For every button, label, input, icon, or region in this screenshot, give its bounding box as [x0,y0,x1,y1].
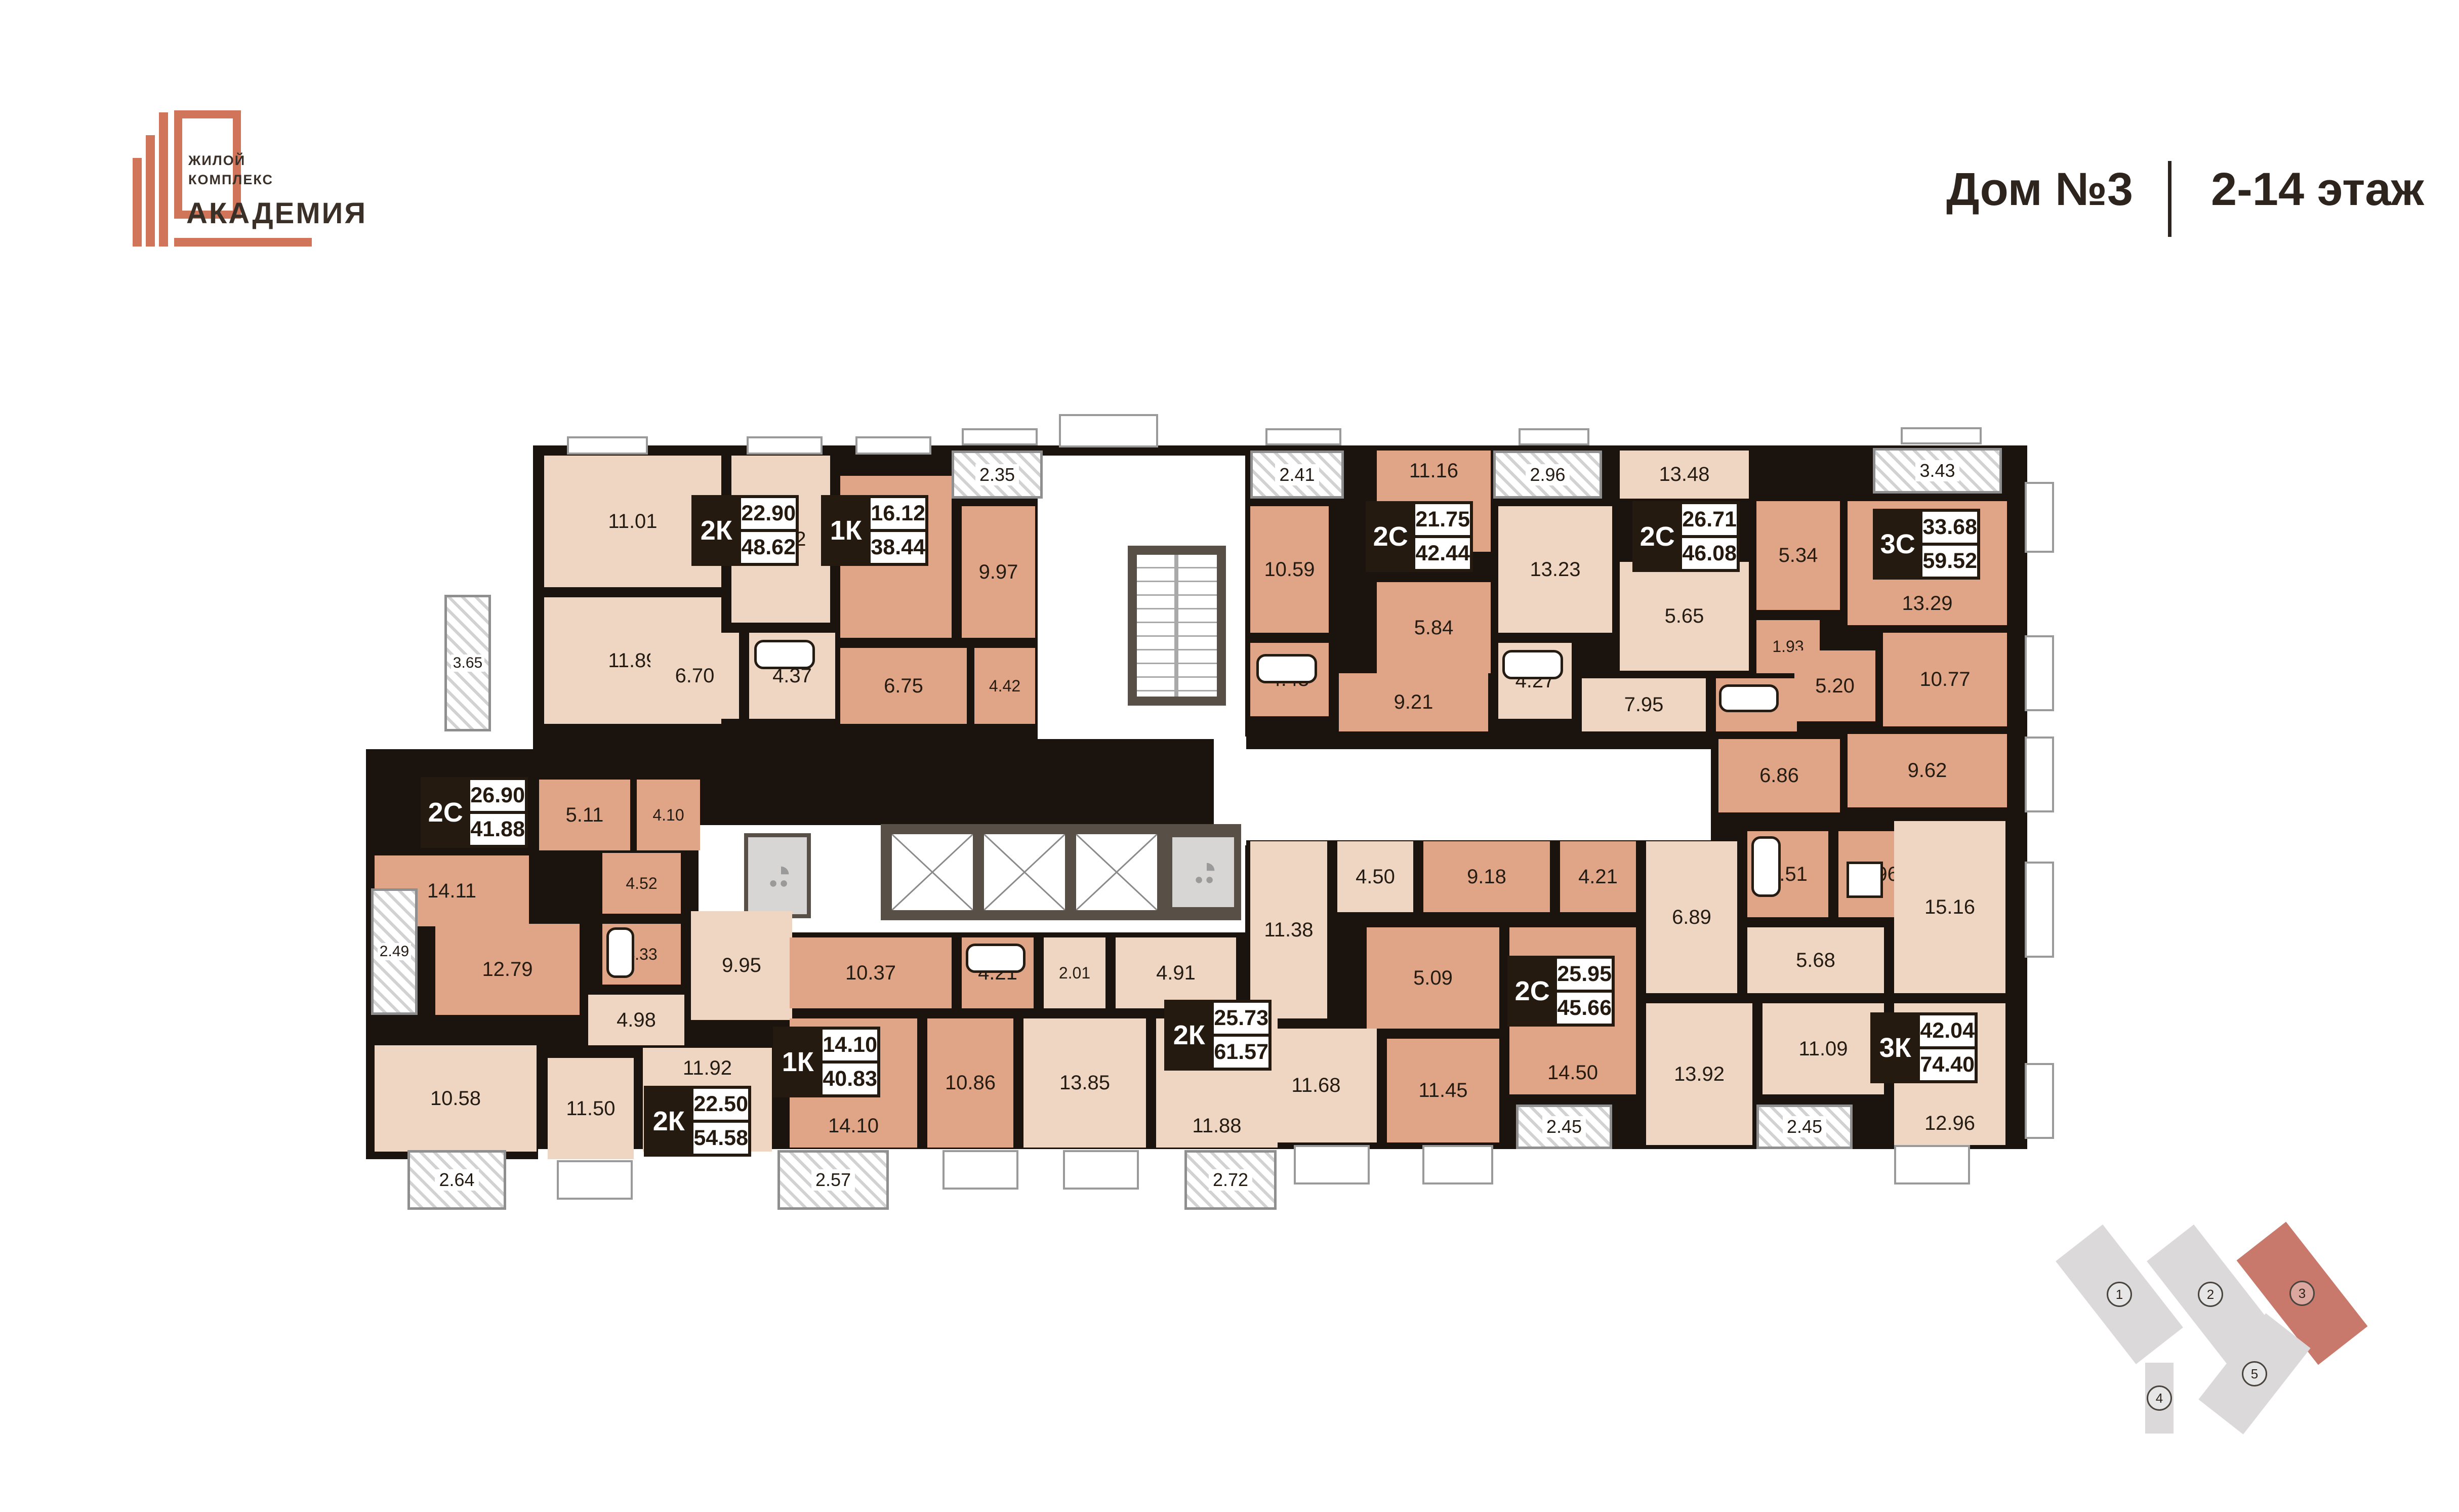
bathtub-icon [966,944,1026,973]
window [1901,427,1982,444]
logo-bar-3 [159,112,168,247]
window [2025,737,2054,812]
room-area-label: 6.75 [884,675,923,698]
room-area-label: 14.10 [828,1115,879,1137]
logo-line1: ЖИЛОЙ [188,153,245,169]
bathtub-icon [606,927,634,978]
logo-line2: КОМПЛЕКС [188,172,273,188]
window [567,436,648,455]
balcony: 2.45 [1756,1105,1853,1149]
balcony-area-label: 2.49 [378,943,411,960]
room-area-label: 15.16 [1924,896,1975,919]
apartment-type: 3С [1876,512,1919,577]
room: 6.89 [1646,841,1737,993]
window [557,1160,633,1200]
header-divider [2168,161,2171,237]
room-area-label: 6.70 [675,665,715,687]
balcony: 3.65 [444,595,491,731]
apartment-plate[interactable]: 3С33.6859.52 [1873,509,1980,580]
apartment-plate[interactable]: 1К16.1238.44 [821,495,928,566]
site-building-number: 3 [2289,1281,2315,1306]
room-area-label: 11.92 [683,1057,732,1080]
apartment-total-area: 61.57 [1214,1037,1268,1068]
room-area-label: 13.29 [1902,592,1952,615]
site-building-number: 4 [2147,1385,2172,1411]
balcony: 2.64 [407,1150,506,1210]
balcony-area-label: 3.43 [1915,460,1959,481]
balcony-area-label: 2.35 [975,464,1019,485]
balcony-area-label: 2.45 [1542,1116,1586,1137]
site-building-number: 1 [2107,1282,2132,1307]
apartment-total-area: 45.66 [1557,993,1612,1024]
apartment-plate[interactable]: 2К22.5054.58 [644,1086,751,1157]
stroller-room [1168,833,1238,911]
window [2025,482,2054,553]
apartment-type: 2К [694,498,738,563]
room-area-label: 10.77 [1919,668,1970,691]
room-area-label: 10.59 [1264,558,1315,581]
shower-icon [1847,862,1883,898]
room: 2.01 [1044,937,1105,1008]
room-area-label: 11.89 [608,649,657,672]
room-area-label: 10.37 [845,962,896,985]
stairs-divider [1174,555,1178,697]
room: 12.79 [435,924,580,1015]
balcony-area-label: 2.72 [1209,1169,1252,1191]
room-area-label: 12.79 [482,958,532,981]
room: 5.68 [1747,927,1884,993]
room: 10.58 [375,1045,537,1152]
room: 13.23 [1498,506,1612,633]
site-building-number: 5 [2242,1361,2267,1386]
room-area-label: 9.18 [1467,866,1506,888]
room-area-label: 11.09 [1798,1038,1848,1060]
room: 4.98 [588,995,684,1045]
stroller-icon [1189,858,1217,886]
apartment-total-area: 59.52 [1922,546,1977,577]
apartment-room-area: 25.95 [1557,959,1612,990]
room-area-label: 5.11 [566,804,604,827]
apartment-type: 1К [824,498,868,563]
room-area-label: 4.50 [1356,866,1395,888]
window [1294,1145,1370,1184]
room: 4.91 [1116,937,1236,1008]
stroller-room [744,833,811,918]
room-area-label: 4.52 [626,874,657,893]
window [2025,635,2054,711]
room-area-label: 6.89 [1672,906,1711,929]
elevator-shaft [892,834,973,910]
window [2025,862,2054,958]
logo-bar-1 [133,158,142,247]
room: 5.20 [1794,650,1875,721]
apartment-plate[interactable]: 2С26.7146.08 [1632,501,1740,572]
room: 13.48 [1620,451,1749,499]
balcony-area-label: 2.96 [1526,464,1569,485]
room-area-label: 9.21 [1394,691,1433,714]
room-area-label: 11.16 [1409,460,1458,482]
apartment-total-area: 54.58 [693,1123,748,1154]
room: 10.37 [790,937,952,1008]
room-area-label: 5.20 [1815,675,1855,698]
apartment-type: 2К [1167,1003,1211,1068]
entrance-porch [1059,414,1158,447]
room-area-label: 10.58 [430,1087,481,1110]
apartment-total-area: 74.40 [1920,1049,1975,1080]
apartment-plate[interactable]: 2К25.7361.57 [1164,1000,1272,1071]
room: 13.85 [1023,1018,1146,1148]
room-area-label: 5.34 [1779,544,1818,567]
window [855,436,931,455]
room: 11.09 [1763,1003,1884,1094]
room-area-label: 6.86 [1759,764,1799,787]
balcony: 2.35 [952,451,1043,499]
balcony: 2.41 [1250,451,1344,499]
room: 4.42 [974,648,1035,724]
floor-plan-page: ЖИЛОЙ КОМПЛЕКС АКАДЕМИЯ Дом №3 2-14 этаж [0,0,2459,1512]
apartment-plate[interactable]: 2С25.9545.66 [1507,956,1615,1027]
apartment-room-area: 26.71 [1682,504,1737,535]
room-area-label: 9.97 [979,561,1018,584]
apartment-type: 3К [1873,1015,1917,1080]
logo-baseline [174,238,312,247]
room-area-label: 4.98 [617,1009,656,1032]
apartment-total-area: 38.44 [871,532,925,563]
room: 6.75 [840,648,967,724]
room-area-label: 9.95 [722,954,761,977]
room-area-label: 14.50 [1547,1061,1598,1084]
room: 6.70 [650,633,739,719]
window [1265,428,1341,445]
logo-bar-2 [146,135,155,247]
balcony: 2.72 [1184,1150,1277,1210]
balcony-area-label: 2.45 [1783,1116,1826,1137]
logo-name: АКАДЕМИЯ [186,196,367,230]
apartment-total-area: 40.83 [823,1064,877,1094]
window [747,436,823,455]
room-area-label: 7.95 [1624,693,1664,716]
room-area-label: 12.96 [1924,1112,1975,1135]
apartment-plate[interactable]: 1К14.1040.83 [773,1027,880,1097]
apartment-room-area: 22.50 [693,1089,748,1120]
site-building-4[interactable]: 4 [2145,1363,2174,1434]
balcony: 2.49 [371,888,418,1015]
apartment-type: 2С [424,780,467,845]
apartment-room-area: 33.68 [1922,512,1977,543]
apartment-room-area: 22.90 [741,498,796,529]
window [962,428,1038,445]
room-area-label: 13.23 [1530,558,1580,581]
room-area-label: 9.62 [1908,759,1947,782]
room-area-label: 5.84 [1414,617,1454,639]
balcony-area-label: 2.64 [435,1169,478,1191]
room: 15.16 [1894,821,2005,993]
room-area-label: 10.86 [945,1072,996,1094]
room: 10.77 [1883,633,2007,726]
window [1063,1150,1139,1190]
bathtub-icon [1719,684,1779,712]
apartment-type: 2С [1635,504,1679,569]
room-area-label: 11.68 [1291,1074,1340,1097]
room-area-label: 4.21 [1578,866,1618,888]
room: 5.65 [1620,562,1749,671]
apartment-type: 2К [647,1089,690,1154]
room: 9.18 [1423,841,1550,912]
balcony: 2.45 [1516,1105,1612,1149]
room: 10.86 [927,1018,1013,1148]
apartment-plate[interactable]: 2К22.9048.62 [691,495,799,566]
apartment-type: 2С [1510,959,1554,1024]
window [2025,1063,2054,1139]
room-area-label: 13.48 [1659,463,1709,486]
room: 9.21 [1339,673,1488,731]
apartment-room-area: 21.75 [1415,504,1470,535]
apartment-total-area: 41.88 [470,814,525,845]
room-area-label: 13.85 [1059,1072,1110,1094]
room-area-label: 4.91 [1156,962,1196,985]
room-area-label: 4.42 [989,677,1020,696]
apartment-total-area: 42.44 [1415,538,1470,569]
room: 10.59 [1250,506,1329,633]
bathtub-icon [1256,654,1317,683]
room-area-label: 11.38 [1264,919,1313,942]
room: 11.38 [1250,841,1327,1018]
apartment-room-area: 16.12 [871,498,925,529]
bathtub-icon [754,640,815,669]
elevator-shaft [1076,834,1157,910]
bathtub-icon [1502,650,1563,679]
room-area-label: 11.45 [1418,1079,1467,1102]
room-area-label: 11.50 [566,1097,615,1120]
room: 4.50 [1337,841,1413,912]
room: 4.10 [637,780,700,850]
apartment-type: 2С [1369,504,1412,569]
balcony-area-label: 3.65 [451,655,484,672]
apartment-room-area: 42.04 [1920,1015,1975,1046]
apartment-room-area: 25.73 [1214,1003,1268,1034]
room-area-label: 5.65 [1665,605,1704,628]
apartment-total-area: 48.62 [741,532,796,563]
window [942,1150,1018,1190]
header-floors: 2-14 этаж [2211,163,2424,216]
room-area-label: 2.01 [1059,964,1090,983]
header-building-title: Дом №3 [1946,163,2133,216]
stroller-icon [763,862,792,890]
window [1519,428,1589,445]
apartment-plate[interactable]: 2С21.7542.44 [1366,501,1473,572]
room: 5.09 [1367,927,1499,1029]
room-area-label: 4.10 [652,806,684,825]
apartment-plate[interactable]: 3К42.0474.40 [1870,1012,1978,1083]
balcony: 2.57 [777,1150,889,1210]
window [1422,1145,1493,1184]
room: 9.97 [962,506,1035,638]
room: 5.11 [539,780,630,850]
elevator-shaft [984,834,1065,910]
apartment-total-area: 46.08 [1682,538,1737,569]
corridor-band [1245,749,1711,840]
balcony-area-label: 2.57 [811,1169,855,1191]
room-area-label: 13.92 [1674,1063,1725,1086]
room-area-label: 11.01 [608,510,657,533]
apartment-room-area: 26.90 [470,780,525,811]
room-area-label: 5.09 [1413,967,1453,990]
room: 5.84 [1377,582,1491,673]
room: 11.68 [1255,1029,1377,1142]
room: 11.50 [548,1058,634,1159]
room-area-label: 11.88 [1192,1115,1241,1137]
room: 4.21 [1560,841,1636,912]
balcony: 3.43 [1873,448,2002,494]
apartment-plate[interactable]: 2С26.9041.88 [421,777,528,848]
apartment-type: 1К [776,1030,819,1094]
room: 6.86 [1718,739,1840,812]
window [1894,1145,1970,1184]
site-building-number: 2 [2198,1282,2223,1307]
balcony-area-label: 2.41 [1275,464,1319,485]
room: 9.95 [691,911,792,1020]
room-area-label: 5.68 [1796,949,1835,972]
room-area-label: 14.11 [427,880,476,903]
room: 4.52 [602,853,681,914]
room: 9.62 [1848,734,2007,807]
room: 11.45 [1387,1039,1499,1142]
room: 7.95 [1582,678,1706,731]
room: 13.92 [1646,1003,1752,1145]
site-building-1[interactable]: 1 [2056,1224,2183,1364]
balcony: 2.96 [1493,451,1602,499]
apartment-room-area: 14.10 [823,1030,877,1060]
room: 5.34 [1756,501,1840,610]
bathtub-icon [1751,836,1781,897]
